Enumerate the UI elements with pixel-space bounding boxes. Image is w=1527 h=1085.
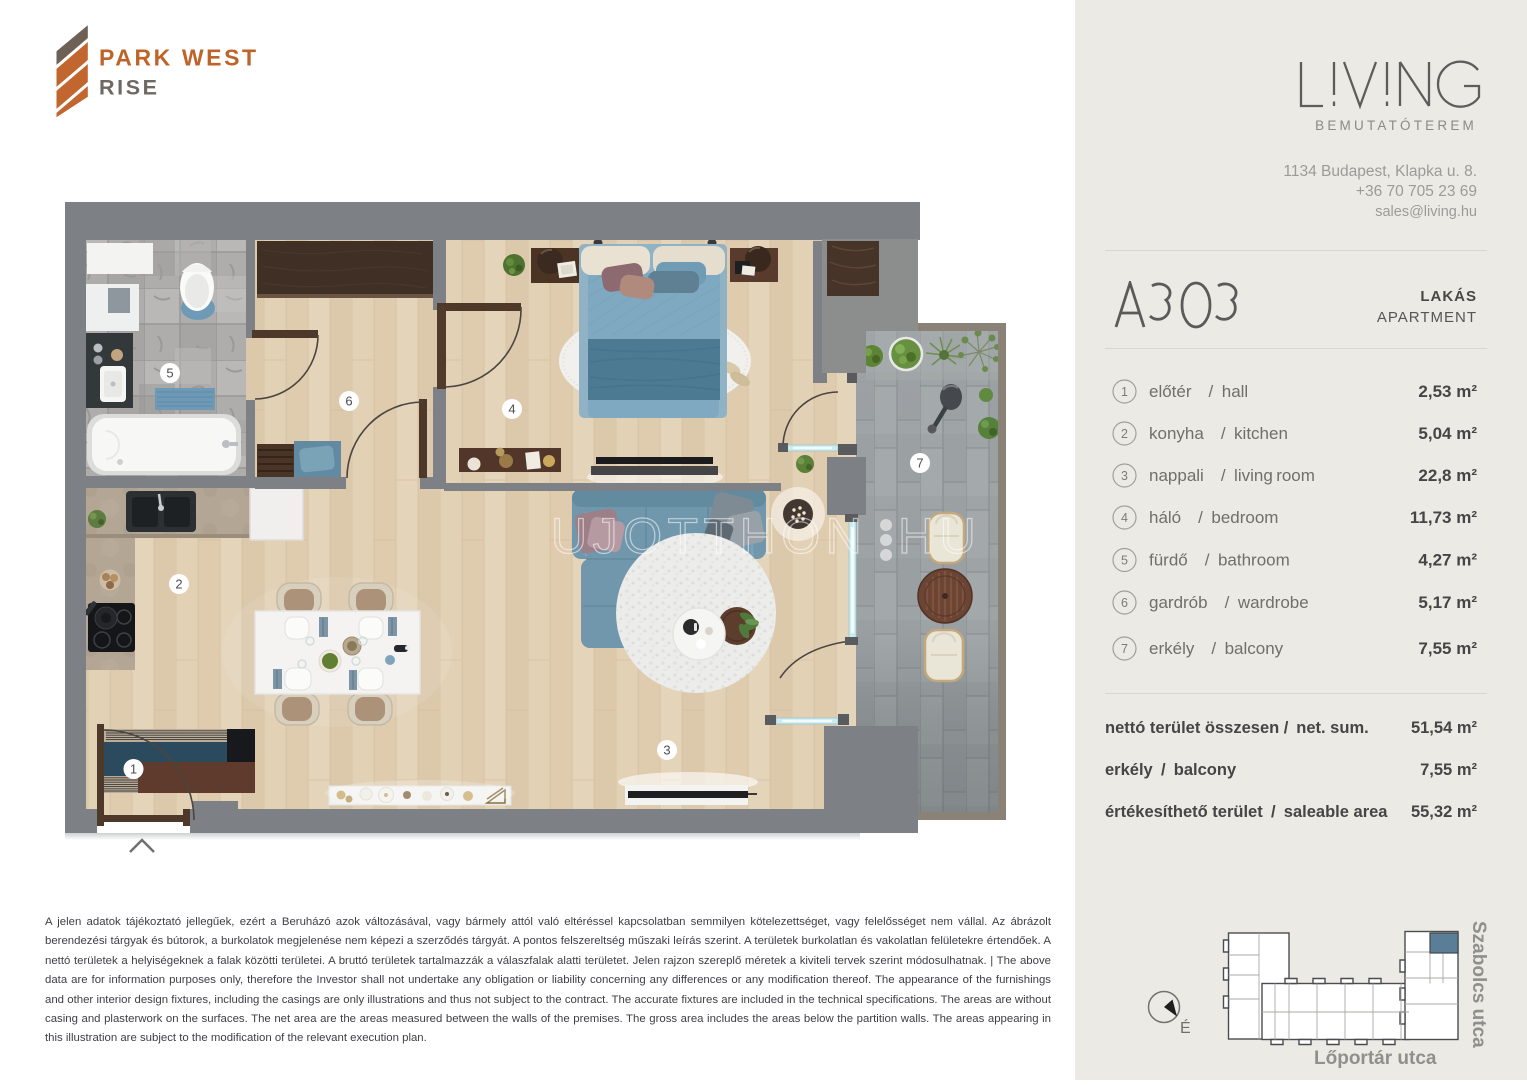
svg-text:1: 1 <box>1121 385 1128 399</box>
svg-text:7: 7 <box>1121 642 1128 656</box>
svg-text:3: 3 <box>663 743 670 758</box>
svg-text:7,55 m²: 7,55 m² <box>1420 761 1477 779</box>
svg-text:5: 5 <box>1121 554 1128 568</box>
svg-text:2,53 m²: 2,53 m² <box>1418 382 1477 401</box>
svg-text:előtér / hall: előtér / hall <box>1149 382 1248 401</box>
svg-text:Lőportár utca: Lőportár utca <box>1314 1048 1437 1069</box>
svg-text:értékesíthető terület / saleab: értékesíthető terület / saleable area <box>1105 803 1388 821</box>
svg-text:3: 3 <box>1121 469 1128 483</box>
svg-text:55,32 m²: 55,32 m² <box>1411 803 1478 821</box>
svg-text:2: 2 <box>1121 427 1128 441</box>
svg-text:6: 6 <box>1121 596 1128 610</box>
svg-text:1: 1 <box>130 762 137 777</box>
svg-text:7,55 m²: 7,55 m² <box>1418 639 1477 658</box>
svg-text:4: 4 <box>1121 511 1128 525</box>
svg-text:háló / bedroom: háló / bedroom <box>1149 508 1278 527</box>
svg-text:fürdő / bathroom: fürdő / bathroom <box>1149 551 1290 570</box>
svg-text:2: 2 <box>175 577 182 592</box>
svg-text:4: 4 <box>508 402 515 417</box>
svg-text:22,8 m²: 22,8 m² <box>1418 466 1477 485</box>
svg-text:É: É <box>1180 1018 1191 1037</box>
svg-text:nappali / living room: nappali / living room <box>1149 466 1315 485</box>
svg-text:7: 7 <box>916 456 923 471</box>
svg-text:HU: HU <box>898 508 981 564</box>
svg-text:erkély / balcony: erkély / balcony <box>1105 761 1237 779</box>
svg-text:konyha / kitchen: konyha / kitchen <box>1149 424 1288 443</box>
svg-text:gardrób / wardrobe: gardrób / wardrobe <box>1149 593 1309 612</box>
svg-text:5,17 m²: 5,17 m² <box>1418 593 1477 612</box>
svg-text:Szabolcs utca: Szabolcs utca <box>1468 921 1489 1048</box>
svg-text:nettó terület összesen / net.: nettó terület összesen / net. sum. <box>1105 719 1369 737</box>
svg-text:51,54 m²: 51,54 m² <box>1411 719 1478 737</box>
svg-text:erkély / balcony: erkély / balcony <box>1149 639 1284 658</box>
svg-text:11,73 m²: 11,73 m² <box>1410 508 1477 527</box>
svg-text:4,27 m²: 4,27 m² <box>1418 551 1477 570</box>
svg-text:5,04 m²: 5,04 m² <box>1418 424 1477 443</box>
svg-text:UJOTTHON: UJOTTHON <box>551 508 867 564</box>
svg-text:5: 5 <box>166 366 173 381</box>
svg-text:6: 6 <box>345 394 352 409</box>
